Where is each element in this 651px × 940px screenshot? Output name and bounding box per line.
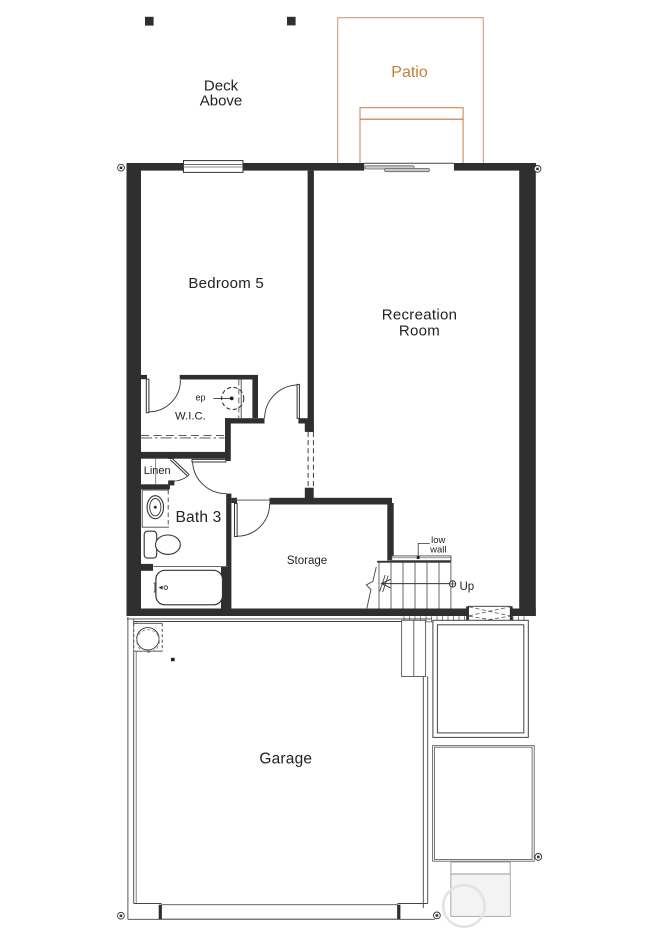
- svg-text:ep: ep: [195, 393, 205, 403]
- svg-text:Bedroom 5: Bedroom 5: [188, 275, 264, 292]
- svg-text:Storage: Storage: [287, 555, 327, 567]
- svg-text:W.I.C.: W.I.C.: [175, 411, 206, 423]
- svg-text:Recreation: Recreation: [382, 307, 458, 324]
- svg-text:Garage: Garage: [259, 751, 312, 768]
- svg-text:Above: Above: [200, 93, 243, 110]
- svg-text:Patio: Patio: [391, 64, 428, 81]
- svg-text:Linen: Linen: [144, 465, 171, 477]
- svg-text:wall: wall: [429, 544, 446, 555]
- svg-text:Bath 3: Bath 3: [175, 509, 221, 526]
- svg-text:Up: Up: [460, 581, 475, 593]
- svg-text:Room: Room: [399, 323, 440, 340]
